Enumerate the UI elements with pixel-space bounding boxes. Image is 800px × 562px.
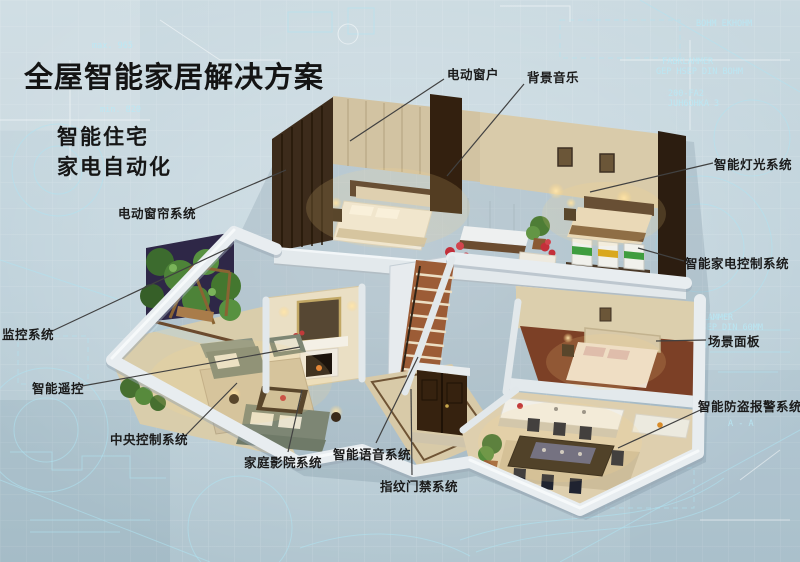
callout-electric-window: 电动窗户 xyxy=(447,64,499,83)
callout-burglar-alarm: 智能防盗报警系统 xyxy=(698,396,800,415)
blueprint-annotation: BOHM EKHOHM xyxy=(696,19,752,29)
blueprint-annotation: min. 820 xyxy=(100,105,141,115)
blueprint-annotation: A - A xyxy=(728,419,754,429)
callout-fingerprint-access: 指纹门禁系统 xyxy=(380,476,458,495)
callout-voice-system: 智能语音系统 xyxy=(333,444,411,463)
callout-background-music: 背景音乐 xyxy=(527,67,579,86)
subtitle-line-2: 家电自动化 xyxy=(57,151,172,181)
subtitle-line-1: 智能住宅 xyxy=(57,121,149,151)
blueprint-annotation: GEP HSEP DIN BOHM xyxy=(656,67,743,77)
blueprint-annotation: 200-FA2 xyxy=(668,89,704,99)
callout-smart-lighting: 智能灯光系统 xyxy=(714,154,792,173)
mirror xyxy=(298,298,340,342)
callout-appliance-control: 智能家电控制系统 xyxy=(685,253,789,272)
page-title: 全屋智能家居解决方案 xyxy=(24,54,324,96)
blueprint-annotation: FABKLAMMER xyxy=(662,57,714,67)
blueprint-annotation: max. 965 xyxy=(92,41,133,51)
callout-central-control: 中央控制系统 xyxy=(110,429,188,448)
callout-scene-panel: 场景面板 xyxy=(708,331,760,350)
callout-home-theater: 家庭影院系统 xyxy=(244,452,322,471)
callout-smart-remote: 智能遥控 xyxy=(32,378,84,397)
blueprint-annotation: JUH6OHKA 3 xyxy=(668,99,719,109)
callout-electric-curtain: 电动窗帘系统 xyxy=(118,203,196,222)
callout-monitoring: 监控系统 xyxy=(2,324,54,343)
poster: max. 965 min. 820 BOHM EKHOHM FABKLAMMER… xyxy=(0,0,800,562)
